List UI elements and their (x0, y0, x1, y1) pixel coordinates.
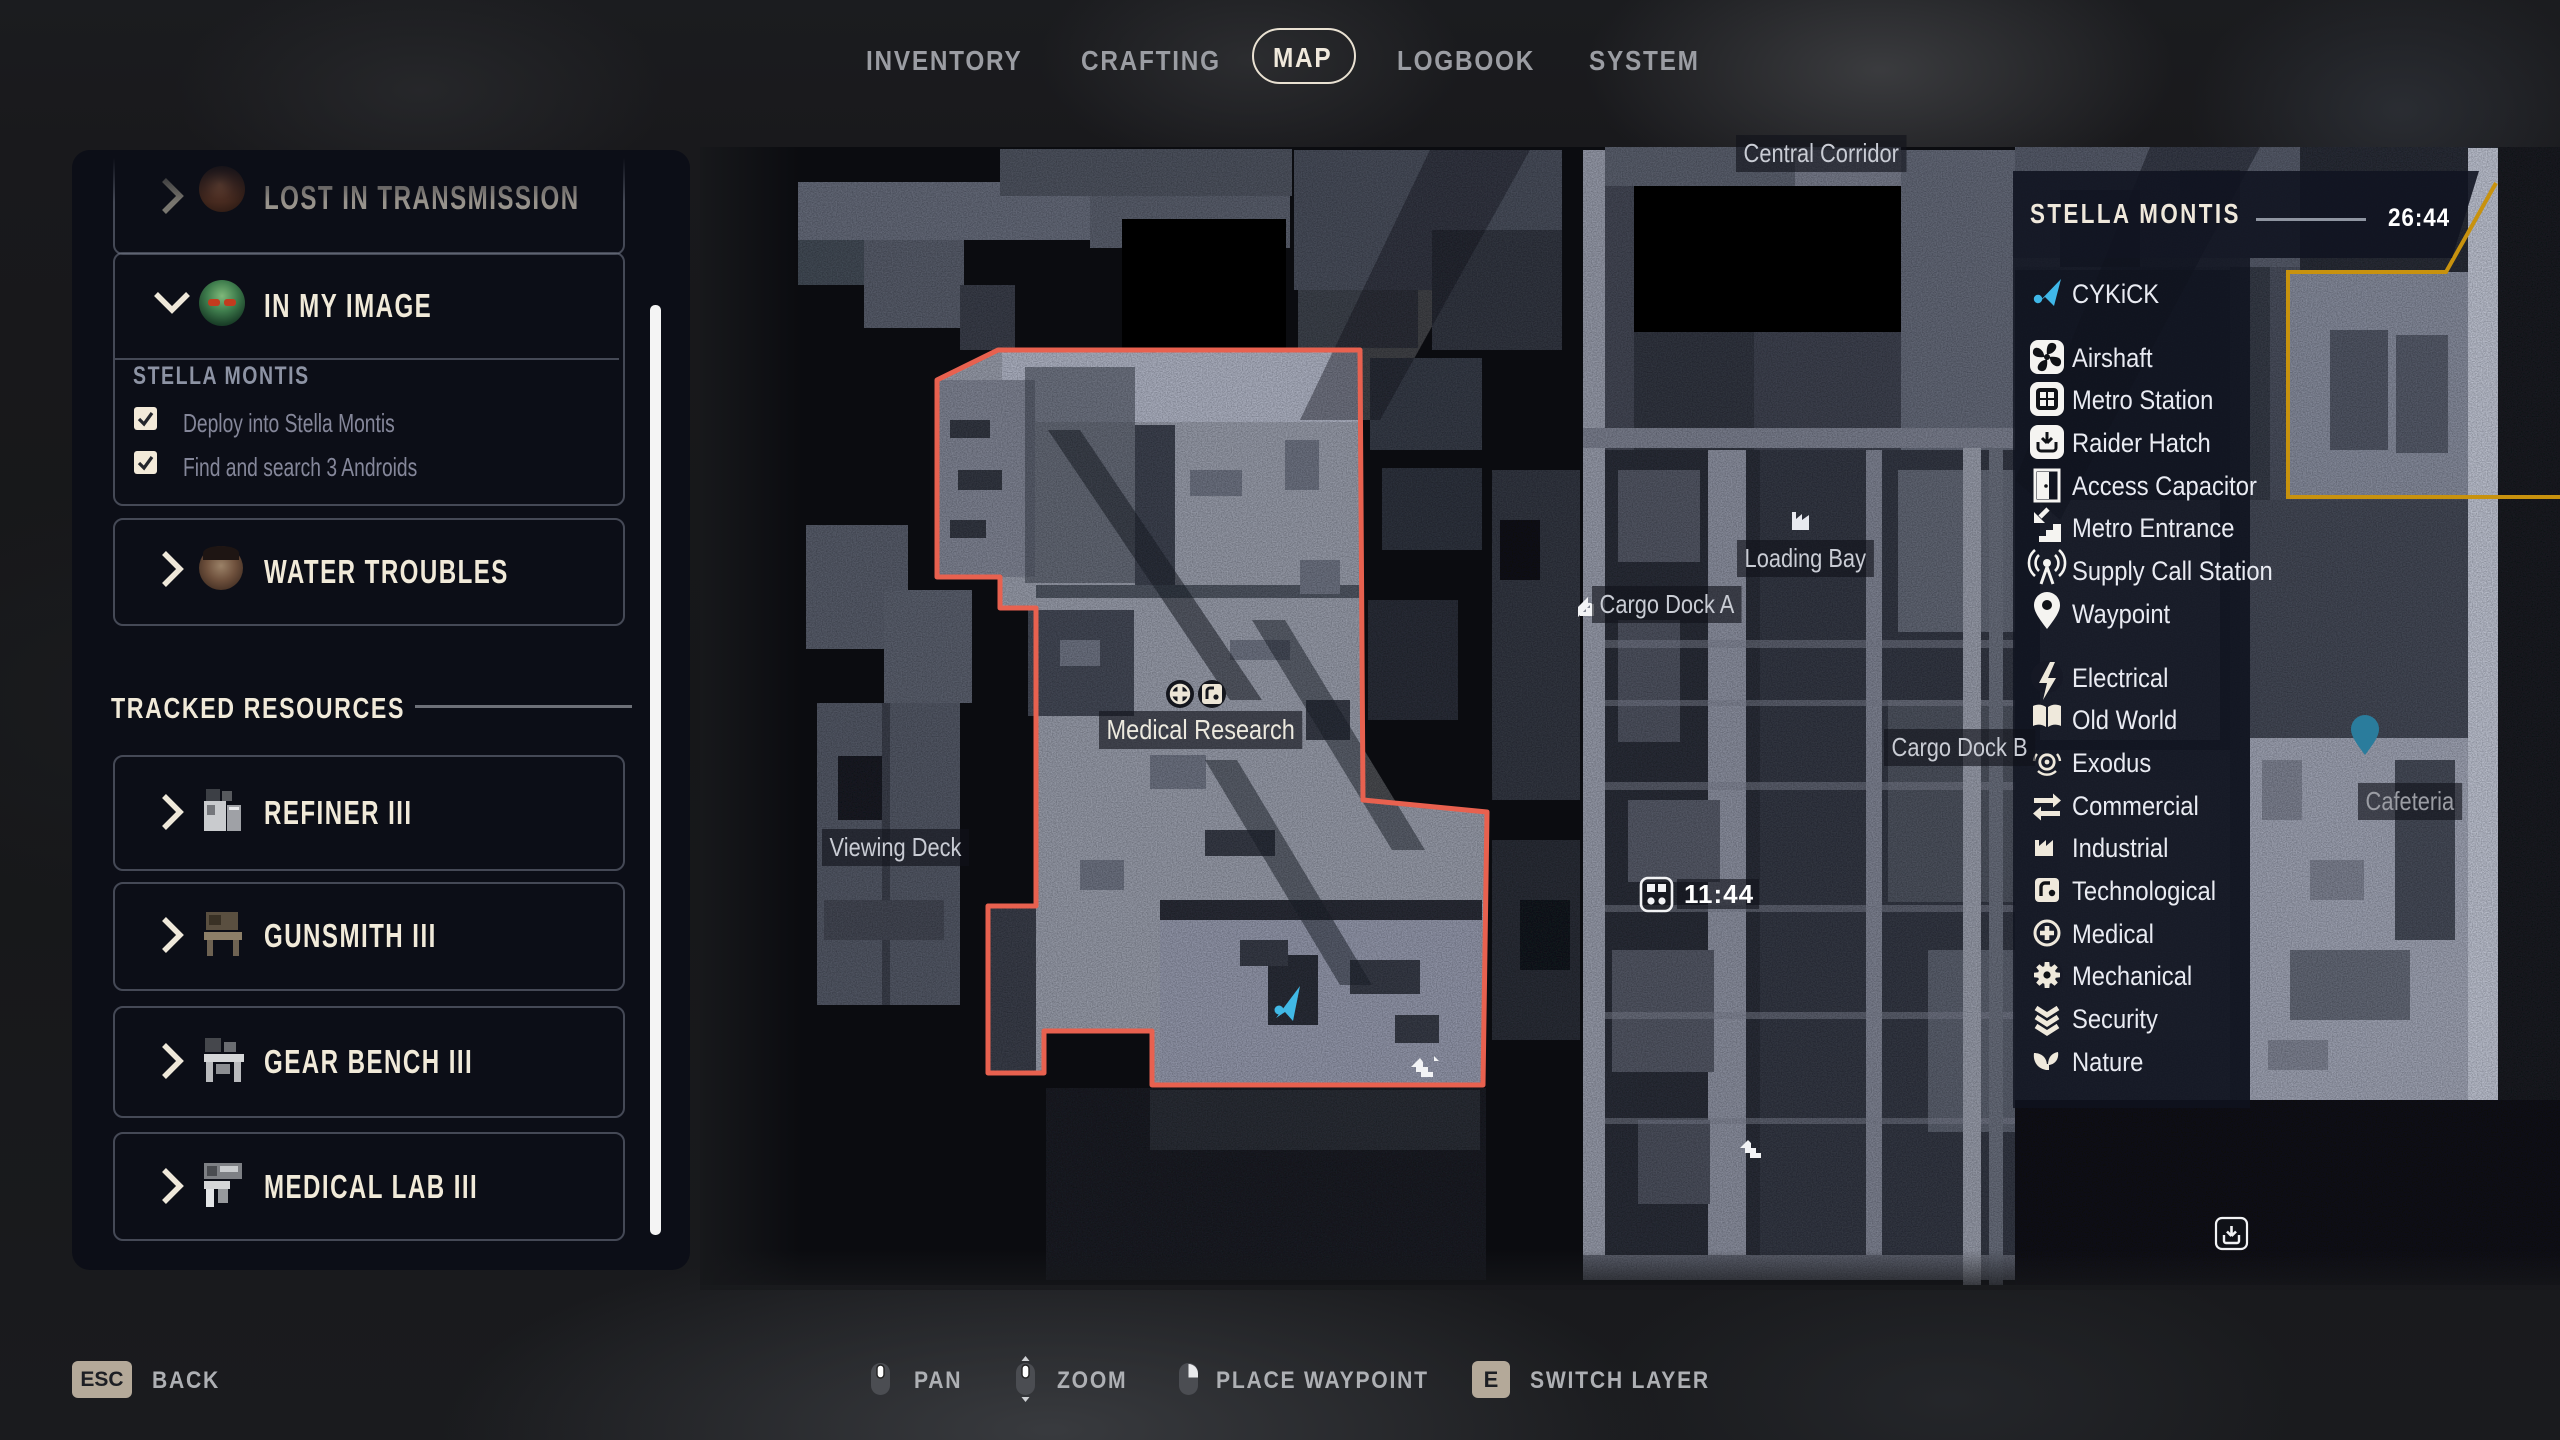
svg-text:11:44: 11:44 (1684, 879, 1754, 909)
